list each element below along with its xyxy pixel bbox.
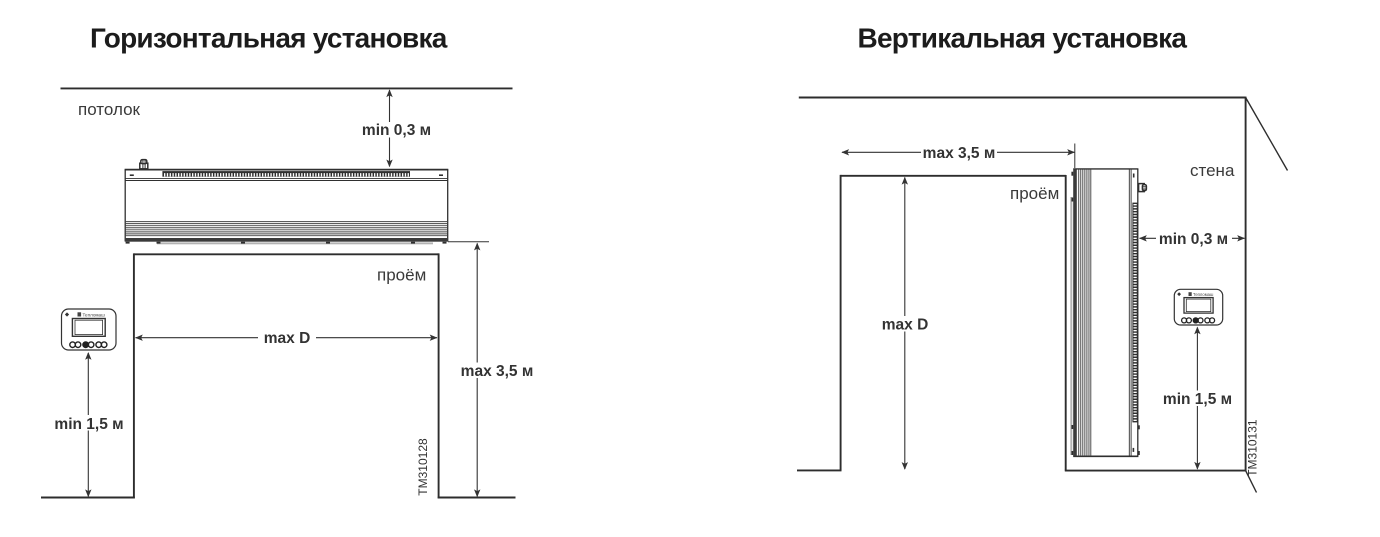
svg-text:TM310131: TM310131 (1246, 419, 1260, 477)
svg-text:min 1,5 м: min 1,5 м (1163, 391, 1232, 408)
svg-text:потолок: потолок (78, 100, 141, 119)
svg-text:проём: проём (377, 266, 426, 285)
svg-text:max 3,5 м: max 3,5 м (461, 363, 534, 380)
svg-text:min 0,3 м: min 0,3 м (362, 122, 431, 139)
svg-text:Горизонтальная установка: Горизонтальная установка (90, 23, 448, 54)
svg-text:проём: проём (1010, 184, 1059, 203)
svg-text:Тепломаш: Тепломаш (1193, 292, 1214, 297)
svg-text:max D: max D (882, 316, 929, 333)
svg-text:max 3,5 м: max 3,5 м (923, 145, 996, 162)
svg-text:TM310128: TM310128 (416, 438, 430, 496)
svg-text:max D: max D (264, 330, 311, 347)
svg-text:min 0,3 м: min 0,3 м (1159, 231, 1228, 248)
svg-text:Тепломаш: Тепломаш (83, 312, 106, 317)
svg-text:Вертикальная установка: Вертикальная установка (858, 23, 1188, 54)
svg-text:стена: стена (1190, 161, 1235, 180)
svg-text:min 1,5 м: min 1,5 м (54, 416, 123, 433)
